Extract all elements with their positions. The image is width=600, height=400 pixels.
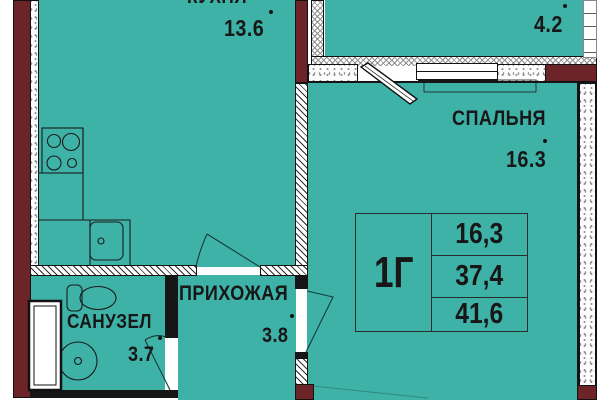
wall-bathroom-bottom <box>30 390 178 398</box>
table-row: 37,4 <box>432 256 527 298</box>
room-area-kitchen: 13.6 <box>224 15 264 42</box>
label-dot-hallway <box>290 314 294 318</box>
door-opening-bathroom <box>166 338 177 391</box>
wall-stub-hall-bedroom-top <box>295 276 308 289</box>
wall-brick-top-right <box>545 64 597 82</box>
wall-hall-bathroom <box>165 276 178 338</box>
unit-areas-column: 16,3 37,4 41,6 <box>432 214 527 331</box>
table-row: 16,3 <box>432 214 527 256</box>
window-loggia-right <box>583 0 597 58</box>
wall-partition-kitchen-bedroom <box>295 83 308 267</box>
wall-partition-kitchen-hall-left <box>30 265 197 276</box>
wall-concrete-left <box>30 0 39 267</box>
unit-type-cell: 1Г <box>356 214 432 331</box>
area-total-value: 41,6 <box>455 298 503 331</box>
label-dot-loggia <box>563 4 567 8</box>
room-label-kitchen: КУХНЯ <box>187 0 247 9</box>
wall-brick-top-middle <box>295 0 308 83</box>
door-opening-bedroom <box>296 289 307 352</box>
wall-concrete-balcony-2 <box>497 64 546 82</box>
floor-plan: КУХНЯ 13.6 4.2 СПАЛЬНЯ 16.3 ПРИХОЖАЯ 3.8… <box>0 0 600 400</box>
room-label-hallway: ПРИХОЖАЯ <box>179 282 288 306</box>
room-area-hallway: 3.8 <box>262 324 288 348</box>
wall-insulation-vertical <box>311 0 324 58</box>
wall-partition-kitchen-hall-right <box>260 265 308 276</box>
area-living-value: 16,3 <box>455 218 503 251</box>
label-dot-bathroom <box>158 336 162 340</box>
label-dot-kitchen <box>269 10 273 14</box>
wall-concrete-right <box>577 83 597 386</box>
room-bathroom <box>30 276 165 392</box>
room-area-bedroom: 16.3 <box>506 146 546 173</box>
room-area-bathroom: 3.7 <box>128 343 154 367</box>
wall-concrete-balcony-1 <box>308 64 358 82</box>
label-dot-bedroom <box>543 139 547 143</box>
window-balcony <box>416 63 498 80</box>
door-opening-balcony <box>358 66 418 81</box>
table-row: 41,6 <box>432 298 527 331</box>
unit-info-table: 1Г 16,3 37,4 41,6 <box>355 213 528 332</box>
wall-stub-hall-bedroom-hatch <box>295 358 308 385</box>
wall-brick-hall-bottom <box>295 384 314 400</box>
area-sub-total-value: 37,4 <box>455 260 503 293</box>
room-area-loggia: 4.2 <box>534 11 563 38</box>
wall-brick-left <box>13 0 31 398</box>
room-label-bedroom: СПАЛЬНЯ <box>452 107 546 131</box>
room-label-bathroom: САНУЗЕЛ <box>67 311 152 334</box>
unit-type-label: 1Г <box>374 248 414 298</box>
wall-brick-bottom-right <box>577 385 597 400</box>
